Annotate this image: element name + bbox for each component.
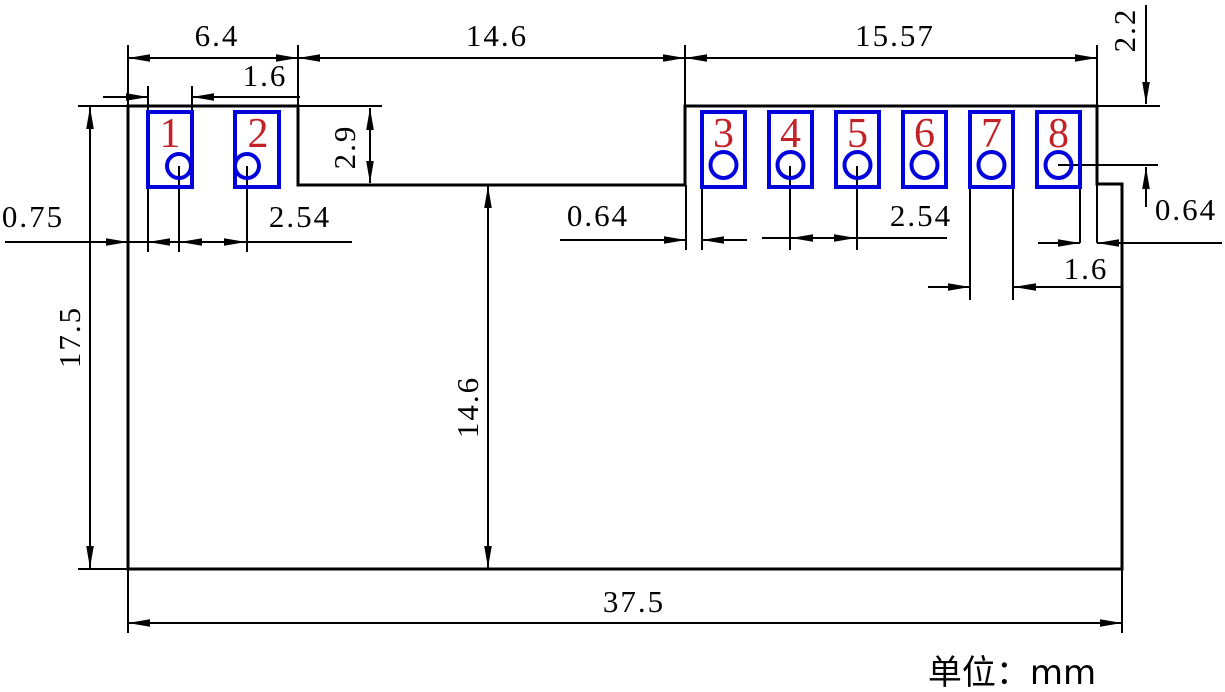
pad-7-number: 7 (981, 111, 1002, 157)
dim-pad7-width: 1.6 (928, 251, 1122, 287)
dim-label-left-pad-pitch: 2.54 (269, 199, 331, 234)
dim-body-height: 14.6 (450, 186, 488, 568)
dim-label-overall-height: 17.5 (52, 306, 87, 368)
pad-2: 2 (235, 111, 279, 187)
dim-label-left-block-width: 6.4 (195, 18, 240, 53)
pad-7: 7 (970, 111, 1013, 187)
dim-label-overall-width: 37.5 (603, 584, 665, 619)
dim-left-block-width: 6.4 (128, 18, 298, 58)
pad-3-number: 3 (713, 111, 734, 157)
pad-6-number: 6 (914, 111, 935, 157)
dim-label-hole-row-offset: 2.2 (1107, 8, 1142, 53)
dim-label-pad1-width: 1.6 (243, 58, 288, 93)
dim-label-left-edge-to-pad1: 0.75 (2, 199, 64, 234)
pad-1: 1 (148, 111, 192, 187)
dim-label-notch-depth: 2.9 (327, 125, 362, 170)
pad-3: 3 (702, 111, 745, 187)
dim-pad1-width: 1.6 (103, 58, 300, 97)
dim-label-right-pad-pitch: 2.54 (890, 198, 952, 233)
pad-8: 8 (1037, 111, 1080, 187)
dim-label-pad7-width: 1.6 (1064, 251, 1109, 286)
dim-label-pad8-to-edge: 0.64 (1155, 192, 1217, 227)
dim-gap-to-pad3: 0.64 (560, 198, 747, 240)
dim-pad8-to-edge: 0.64 (1038, 192, 1222, 243)
pad-8-number: 8 (1048, 111, 1069, 157)
dim-label-right-block-width: 15.57 (855, 18, 935, 53)
dim-notch-depth: 2.9 (327, 108, 370, 183)
pad-4-number: 4 (780, 111, 801, 157)
dim-overall-width: 37.5 (128, 584, 1122, 623)
drawing-canvas: 6.4 14.6 15.57 1.6 2.9 2.2 17.5 14.6 (0, 0, 1225, 692)
units-note: 单位：mm (928, 653, 1096, 692)
dim-center-gap-width: 14.6 (298, 18, 685, 58)
pad-2-number: 2 (248, 111, 269, 157)
dim-label-center-gap-width: 14.6 (466, 18, 528, 53)
dim-label-gap-to-pad3: 0.64 (567, 198, 629, 233)
pad-1-number: 1 (160, 111, 181, 157)
dim-right-block-width: 15.57 (685, 18, 1097, 58)
dim-label-body-height: 14.6 (450, 376, 485, 438)
dim-left-pad-pitch: 2.54 (180, 199, 331, 242)
dimension-drawing: 6.4 14.6 15.57 1.6 2.9 2.2 17.5 14.6 (0, 0, 1225, 692)
pad-6: 6 (903, 111, 946, 187)
dim-overall-height: 17.5 (52, 107, 90, 568)
pad-5-number: 5 (847, 111, 868, 157)
